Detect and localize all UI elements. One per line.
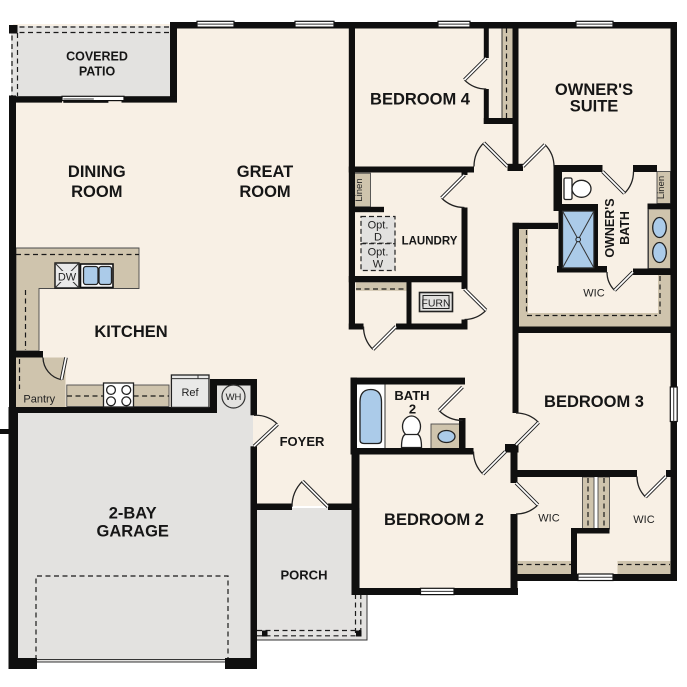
svg-text:OWNER'S: OWNER'S bbox=[555, 81, 633, 99]
svg-text:FOYER: FOYER bbox=[280, 434, 325, 449]
svg-text:Opt.: Opt. bbox=[368, 247, 389, 259]
svg-text:BEDROOM 3: BEDROOM 3 bbox=[544, 393, 644, 411]
svg-text:LAUNDRY: LAUNDRY bbox=[402, 236, 458, 248]
svg-text:GARAGE: GARAGE bbox=[96, 523, 168, 541]
svg-text:DINING: DINING bbox=[68, 163, 126, 181]
svg-text:DW: DW bbox=[58, 272, 77, 284]
svg-text:BEDROOM 4: BEDROOM 4 bbox=[370, 91, 471, 109]
svg-text:W: W bbox=[373, 259, 384, 271]
svg-text:WH: WH bbox=[226, 392, 242, 403]
svg-text:ROOM: ROOM bbox=[71, 183, 122, 201]
svg-text:Opt.: Opt. bbox=[368, 220, 389, 232]
svg-text:2: 2 bbox=[409, 402, 416, 417]
svg-text:SUITE: SUITE bbox=[570, 98, 619, 116]
svg-text:ROOM: ROOM bbox=[239, 183, 290, 201]
svg-text:Pantry: Pantry bbox=[23, 394, 55, 406]
svg-text:BATH: BATH bbox=[618, 211, 632, 245]
svg-text:COVERED: COVERED bbox=[66, 50, 128, 64]
svg-text:D: D bbox=[374, 232, 382, 244]
svg-text:PORCH: PORCH bbox=[281, 568, 328, 583]
svg-text:Ref: Ref bbox=[181, 387, 199, 399]
svg-text:2-BAY: 2-BAY bbox=[109, 505, 157, 523]
svg-text:FURN: FURN bbox=[421, 298, 450, 310]
svg-text:Linen: Linen bbox=[656, 176, 667, 199]
svg-text:KITCHEN: KITCHEN bbox=[94, 323, 167, 341]
svg-text:GREAT: GREAT bbox=[237, 163, 294, 181]
svg-text:Linen: Linen bbox=[354, 178, 365, 201]
svg-text:WIC: WIC bbox=[633, 514, 654, 526]
svg-text:WIC: WIC bbox=[583, 288, 604, 300]
svg-text:BEDROOM 2: BEDROOM 2 bbox=[384, 511, 484, 529]
svg-text:OWNER'S: OWNER'S bbox=[603, 198, 617, 257]
svg-text:WIC: WIC bbox=[538, 513, 559, 525]
svg-text:PATIO: PATIO bbox=[79, 65, 116, 79]
